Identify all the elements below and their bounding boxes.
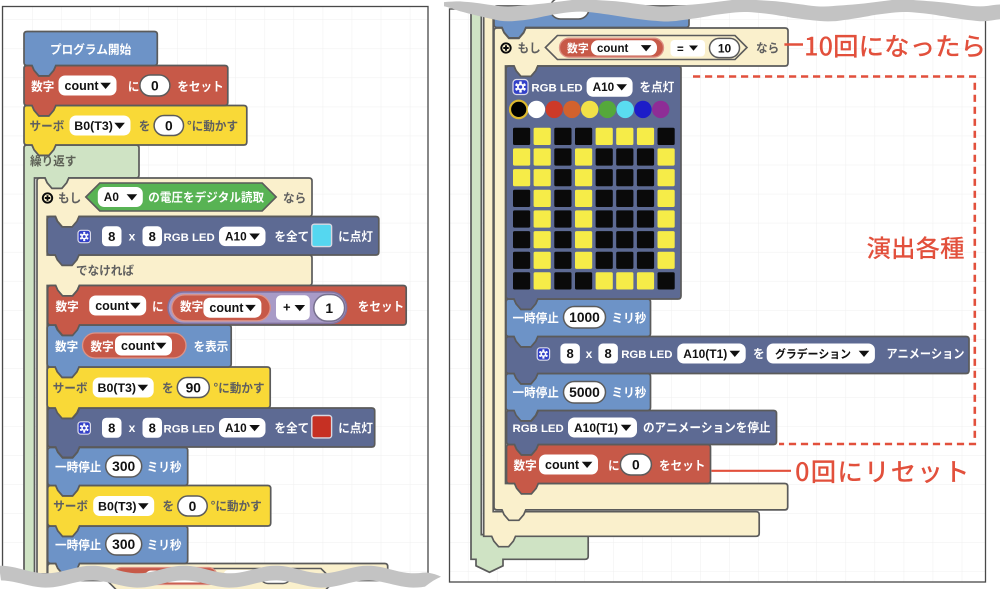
svg-text:8: 8 <box>566 346 573 361</box>
svg-text:300: 300 <box>112 459 135 474</box>
svg-text:90: 90 <box>186 380 202 395</box>
svg-text:0: 0 <box>151 78 159 93</box>
svg-text:count: count <box>121 339 156 353</box>
svg-text:A0: A0 <box>104 190 120 204</box>
svg-text:A10: A10 <box>593 80 615 94</box>
svg-text:count: count <box>65 79 100 93</box>
svg-text:A10(T1): A10(T1) <box>683 347 727 361</box>
svg-text:+: + <box>283 300 291 315</box>
svg-text:B0(T3): B0(T3) <box>98 499 137 513</box>
svg-text:A10: A10 <box>225 230 247 244</box>
svg-text:300: 300 <box>112 537 135 552</box>
svg-text:8: 8 <box>149 421 156 436</box>
svg-text:A10: A10 <box>225 421 247 435</box>
svg-text:x: x <box>129 421 136 435</box>
svg-text:RGB LED: RGB LED <box>164 232 215 244</box>
svg-text:RGB LED: RGB LED <box>513 423 564 435</box>
svg-text:A10(T1): A10(T1) <box>574 421 618 435</box>
svg-text:1: 1 <box>325 301 333 316</box>
svg-text:x: x <box>129 230 136 244</box>
svg-text:count: count <box>597 43 628 55</box>
svg-text:RGB LED: RGB LED <box>164 424 215 436</box>
svg-text:8: 8 <box>604 346 611 361</box>
svg-text:1000: 1000 <box>569 310 600 325</box>
svg-text:5000: 5000 <box>569 385 600 400</box>
svg-text:10: 10 <box>718 41 732 55</box>
svg-text:B0(T3): B0(T3) <box>98 381 137 395</box>
svg-text:x: x <box>586 347 593 361</box>
svg-text:8: 8 <box>108 229 115 244</box>
svg-text:count: count <box>95 299 130 313</box>
svg-text:8: 8 <box>149 229 156 244</box>
svg-text:RGB LED: RGB LED <box>531 83 582 95</box>
svg-text:=: = <box>677 44 684 56</box>
svg-text:count: count <box>545 458 580 472</box>
svg-text:8: 8 <box>108 421 115 436</box>
svg-text:0: 0 <box>189 499 197 514</box>
svg-text:0: 0 <box>632 457 640 472</box>
svg-text:RGB LED: RGB LED <box>621 349 672 361</box>
svg-text:B0(T3): B0(T3) <box>74 119 113 133</box>
svg-text:0: 0 <box>165 118 173 133</box>
svg-text:count: count <box>209 301 244 315</box>
